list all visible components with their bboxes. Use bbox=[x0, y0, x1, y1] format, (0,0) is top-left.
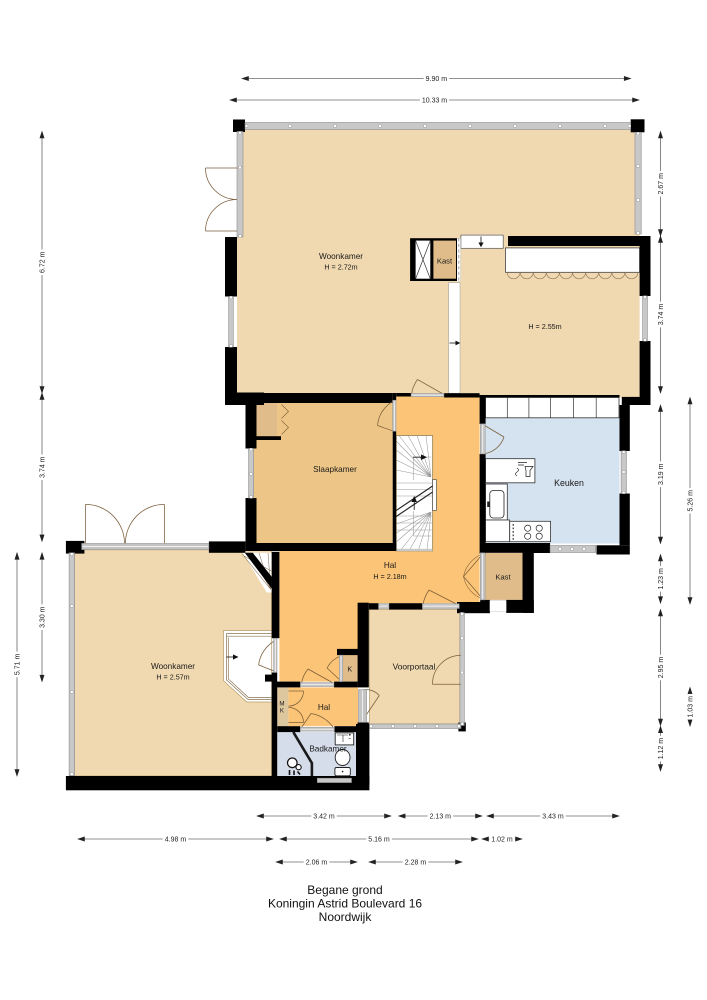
svg-text:1.02 m: 1.02 m bbox=[491, 837, 513, 844]
svg-text:Hal: Hal bbox=[384, 561, 396, 570]
svg-text:2.06 m: 2.06 m bbox=[306, 860, 328, 867]
svg-text:Voorportaal: Voorportaal bbox=[393, 662, 436, 672]
svg-text:4.98 m: 4.98 m bbox=[165, 837, 187, 844]
svg-text:Keuken: Keuken bbox=[554, 478, 584, 488]
svg-text:1.03 m: 1.03 m bbox=[688, 696, 695, 718]
svg-text:Badkamer: Badkamer bbox=[309, 745, 347, 754]
svg-text:10.33 m: 10.33 m bbox=[422, 98, 447, 105]
svg-text:Koningin Astrid Boulevard 16: Koningin Astrid Boulevard 16 bbox=[268, 897, 422, 911]
svg-text:3.42 m: 3.42 m bbox=[313, 814, 335, 821]
svg-text:2.13 m: 2.13 m bbox=[430, 814, 452, 821]
svg-text:3.74 m: 3.74 m bbox=[658, 304, 665, 326]
svg-text:Woonkamer: Woonkamer bbox=[151, 662, 195, 671]
svg-text:Slaapkamer: Slaapkamer bbox=[313, 465, 357, 474]
svg-text:3.19 m: 3.19 m bbox=[658, 463, 665, 485]
svg-text:Noordwijk: Noordwijk bbox=[319, 910, 373, 924]
svg-text:5.16 m: 5.16 m bbox=[368, 837, 390, 844]
svg-text:3.43 m: 3.43 m bbox=[542, 814, 564, 821]
svg-text:H = 2.57m: H = 2.57m bbox=[156, 673, 189, 682]
svg-text:H = 2.18m: H = 2.18m bbox=[373, 572, 406, 581]
svg-text:Begane grond: Begane grond bbox=[307, 883, 382, 897]
svg-text:2.95 m: 2.95 m bbox=[658, 657, 665, 679]
svg-text:1.23 m: 1.23 m bbox=[658, 568, 665, 590]
svg-text:Woonkamer: Woonkamer bbox=[319, 252, 363, 261]
svg-text:3.30 m: 3.30 m bbox=[40, 606, 47, 628]
svg-text:Kast: Kast bbox=[495, 573, 511, 582]
svg-text:H = 2.72m: H = 2.72m bbox=[324, 263, 357, 272]
svg-text:5.26 m: 5.26 m bbox=[688, 490, 695, 512]
svg-text:2.28 m: 2.28 m bbox=[405, 860, 427, 867]
svg-text:1.12 m: 1.12 m bbox=[658, 738, 665, 760]
svg-text:9.90 m: 9.90 m bbox=[426, 76, 448, 83]
svg-text:K: K bbox=[347, 665, 352, 674]
svg-text:Kast: Kast bbox=[437, 257, 453, 266]
svg-text:5.71 m: 5.71 m bbox=[15, 654, 22, 676]
svg-text:6.72 m: 6.72 m bbox=[40, 251, 47, 273]
svg-text:3.74 m: 3.74 m bbox=[40, 456, 47, 478]
svg-text:2.67 m: 2.67 m bbox=[658, 173, 665, 195]
svg-text:H = 2.55m: H = 2.55m bbox=[528, 322, 561, 331]
svg-text:M: M bbox=[279, 701, 284, 708]
svg-text:Hal: Hal bbox=[318, 703, 330, 712]
